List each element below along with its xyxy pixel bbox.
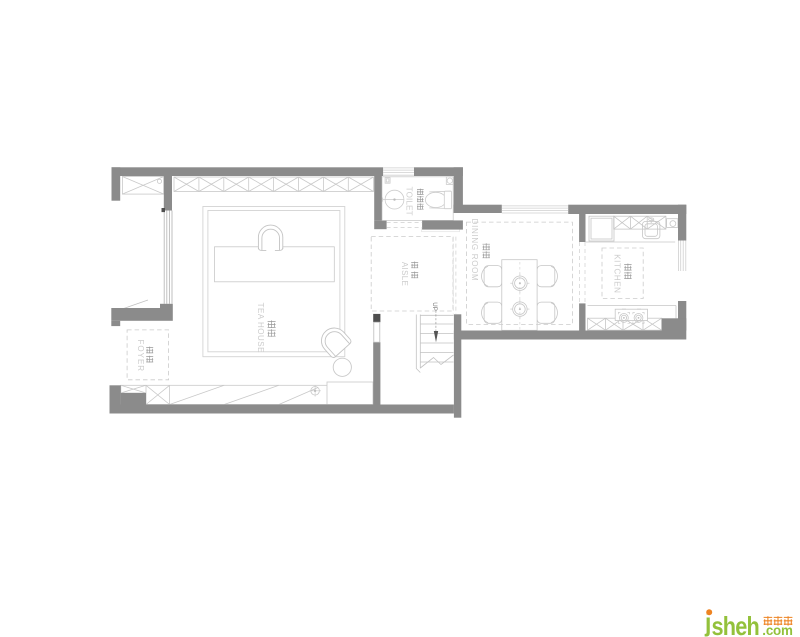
svg-text:TEA HOUSE: TEA HOUSE bbox=[256, 303, 265, 353]
svg-text:DINING ROOM: DINING ROOM bbox=[470, 219, 479, 282]
svg-text:UP: UP bbox=[431, 302, 438, 311]
svg-text:FOYER: FOYER bbox=[136, 340, 145, 373]
svg-text:AISLE: AISLE bbox=[400, 262, 409, 286]
svg-text:TOILET: TOILET bbox=[404, 187, 413, 216]
svg-text:KITCHEN: KITCHEN bbox=[612, 254, 621, 293]
svg-text:sheh: sheh bbox=[712, 614, 760, 637]
